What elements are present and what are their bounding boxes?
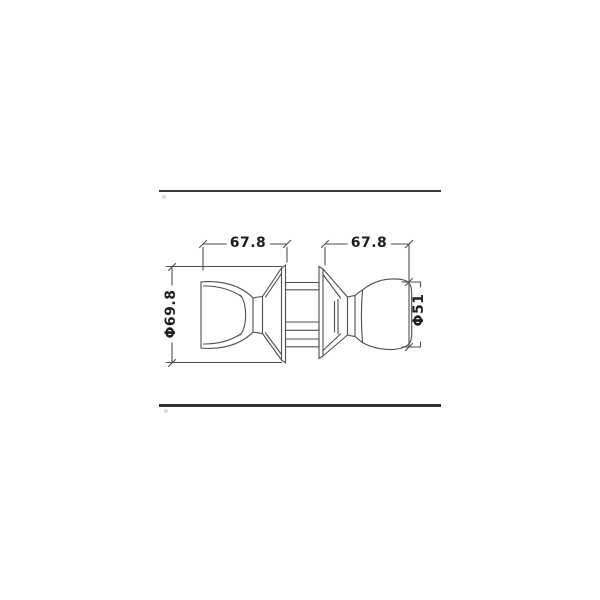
dimension-label-right-diameter: Φ51 [412,294,426,327]
center-spindle-assembly [286,283,320,347]
left-knob-outline [201,265,286,363]
dimension-label-left-diameter: Φ69.8 [164,286,178,343]
door-knob-line-drawing [0,0,600,600]
dimension-label-left-width: 67.8 [227,236,270,250]
right-knob-outline [319,267,412,359]
drawing-canvas: 67.8 67.8 Φ69.8 Φ51 [0,0,600,600]
dimension-label-right-width: 67.8 [348,236,391,250]
dimension-left-diameter [166,264,282,367]
